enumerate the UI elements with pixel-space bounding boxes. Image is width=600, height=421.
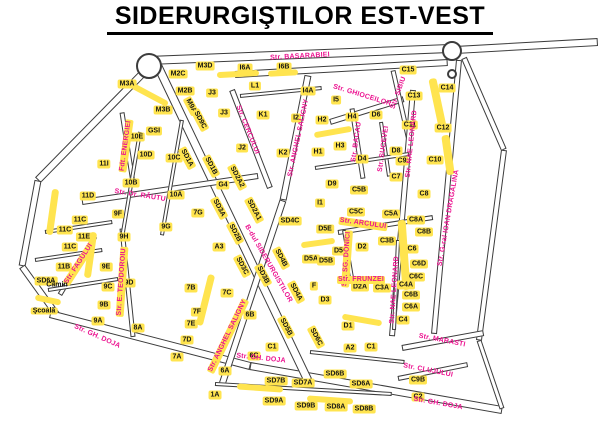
building-label: 7A bbox=[171, 353, 184, 362]
street-label: Str. FRUNZEI bbox=[337, 276, 385, 284]
building-label: L1 bbox=[249, 82, 261, 91]
building-label: 8A bbox=[132, 324, 145, 333]
building-label: F bbox=[310, 282, 318, 291]
building-label: SD2A1 bbox=[244, 196, 264, 224]
road-segment bbox=[160, 120, 184, 236]
building-label: SD7A bbox=[292, 379, 315, 388]
building-label: M2B bbox=[176, 87, 195, 96]
building-label: H4 bbox=[346, 113, 359, 122]
building-label: J3 bbox=[206, 89, 218, 98]
building-label: I4A bbox=[301, 87, 316, 96]
building-label: C6D bbox=[410, 260, 428, 269]
building-label: I5 bbox=[331, 96, 341, 105]
roundabout bbox=[447, 69, 457, 79]
building-label: 11C bbox=[57, 226, 73, 235]
building-label: J2 bbox=[236, 144, 248, 153]
building-block bbox=[314, 126, 352, 139]
building-label: 9E bbox=[100, 263, 113, 272]
building-label: 11D bbox=[80, 192, 96, 201]
map-title: SIDERURGIŞTILOR EST-VEST bbox=[0, 2, 600, 35]
building-label: 10D bbox=[138, 151, 155, 160]
road-segment bbox=[455, 38, 598, 54]
building-label: M3A bbox=[118, 80, 137, 89]
building-label: 7C bbox=[221, 289, 234, 298]
building-label: 10A bbox=[168, 191, 185, 200]
building-label: 9A bbox=[92, 317, 105, 326]
place-label: Şcoală bbox=[31, 308, 58, 315]
building-label: I1 bbox=[315, 199, 325, 208]
building-label: 7B bbox=[185, 284, 198, 293]
building-label: C15 bbox=[400, 66, 417, 75]
building-label: I6B bbox=[277, 63, 292, 72]
building-label: SD6C bbox=[307, 325, 326, 349]
building-label: SD9A bbox=[263, 397, 286, 406]
building-label: H3 bbox=[334, 142, 347, 151]
building-label: C8A bbox=[407, 216, 425, 225]
building-label: M3B bbox=[154, 106, 173, 115]
building-label: C10 bbox=[427, 156, 444, 165]
building-label: C4 bbox=[397, 316, 410, 325]
road-segment bbox=[461, 57, 506, 151]
building-label: 11C bbox=[72, 216, 88, 225]
building-label: SD9B bbox=[295, 402, 318, 411]
building-label: G4 bbox=[216, 181, 229, 190]
street-label: Str. BASARABIEI bbox=[270, 51, 330, 62]
building-label: GSI bbox=[146, 127, 162, 136]
building-label: H1 bbox=[312, 148, 325, 157]
building-label: SD9C bbox=[191, 108, 210, 132]
building-label: C14 bbox=[439, 84, 456, 93]
building-label: D2 bbox=[356, 243, 369, 252]
building-label: C6B bbox=[402, 291, 420, 300]
building-label: 11I bbox=[97, 160, 110, 169]
building-label: SD4C bbox=[279, 217, 302, 226]
building-label: I6A bbox=[238, 64, 253, 73]
building-label: SD8A bbox=[325, 403, 348, 412]
building-label: 9F bbox=[112, 210, 124, 219]
building-label: J3 bbox=[218, 109, 230, 118]
map-title-text: SIDERURGIŞTILOR EST-VEST bbox=[107, 2, 493, 35]
building-label: D5E bbox=[316, 225, 334, 234]
building-block bbox=[301, 238, 336, 249]
building-label: C8 bbox=[418, 190, 431, 199]
road-segment bbox=[476, 150, 507, 341]
place-label: Cămin bbox=[46, 282, 67, 289]
building-label: D1 bbox=[342, 322, 355, 331]
building-label: D3 bbox=[319, 296, 332, 305]
building-label: 7E bbox=[185, 320, 198, 329]
building-label: C5C bbox=[347, 208, 365, 217]
building-label: C3A bbox=[373, 284, 391, 293]
road-segment bbox=[19, 179, 42, 266]
building-label: K1 bbox=[257, 111, 270, 120]
building-label: C8B bbox=[415, 228, 433, 237]
building-label: C13 bbox=[406, 92, 423, 101]
building-label: 9G bbox=[159, 223, 172, 232]
building-label: 7D bbox=[181, 336, 194, 345]
building-label: C12 bbox=[435, 124, 452, 133]
building-label: M3D bbox=[196, 62, 215, 71]
building-label: C6 bbox=[406, 245, 419, 254]
building-label: 6A bbox=[219, 367, 232, 376]
building-label: SD8B bbox=[353, 405, 376, 414]
building-label: 11C bbox=[62, 243, 78, 252]
road-segment bbox=[477, 339, 505, 409]
roundabout bbox=[442, 41, 462, 61]
building-label: C1 bbox=[266, 343, 279, 352]
building-label: C3B bbox=[378, 237, 396, 246]
building-label: C9B bbox=[409, 376, 427, 385]
map-canvas: SIDERURGIŞTILOR EST-VEST M3AM2CM3DM2BM3B… bbox=[0, 0, 600, 421]
building-label: K2 bbox=[277, 149, 290, 158]
building-label: D8 bbox=[390, 147, 403, 156]
building-label: SD7B bbox=[265, 377, 288, 386]
building-label: D9 bbox=[326, 180, 339, 189]
building-label: SD6A bbox=[350, 380, 373, 389]
building-label: C5B bbox=[350, 186, 368, 195]
building-label: SD6B bbox=[324, 370, 347, 379]
building-label: 7F bbox=[191, 308, 203, 317]
building-label: C7 bbox=[390, 173, 403, 182]
building-label: C1 bbox=[365, 343, 378, 352]
building-label: C6A bbox=[402, 303, 420, 312]
building-label: 9H bbox=[118, 233, 131, 242]
building-block bbox=[195, 274, 214, 326]
roundabout bbox=[136, 53, 162, 79]
building-label: D5B bbox=[317, 257, 335, 266]
building-label: A3 bbox=[213, 243, 226, 252]
building-label: 11E bbox=[76, 233, 92, 242]
street-label: Str. NAE LEONARD bbox=[389, 256, 402, 324]
building-label: C4A bbox=[397, 281, 415, 290]
road-segment bbox=[310, 350, 404, 364]
building-label: 7G bbox=[191, 209, 204, 218]
building-label: 6B bbox=[244, 311, 257, 320]
building-label: H2 bbox=[316, 116, 329, 125]
building-label: A2 bbox=[344, 344, 357, 353]
building-label: C5A bbox=[382, 210, 400, 219]
building-label: 10B bbox=[123, 179, 140, 188]
building-label: D6 bbox=[370, 111, 383, 120]
building-label: 9B bbox=[98, 301, 111, 310]
building-label: M2C bbox=[169, 70, 188, 79]
building-label: 1A bbox=[209, 391, 222, 400]
building-label: 9C bbox=[102, 283, 115, 292]
